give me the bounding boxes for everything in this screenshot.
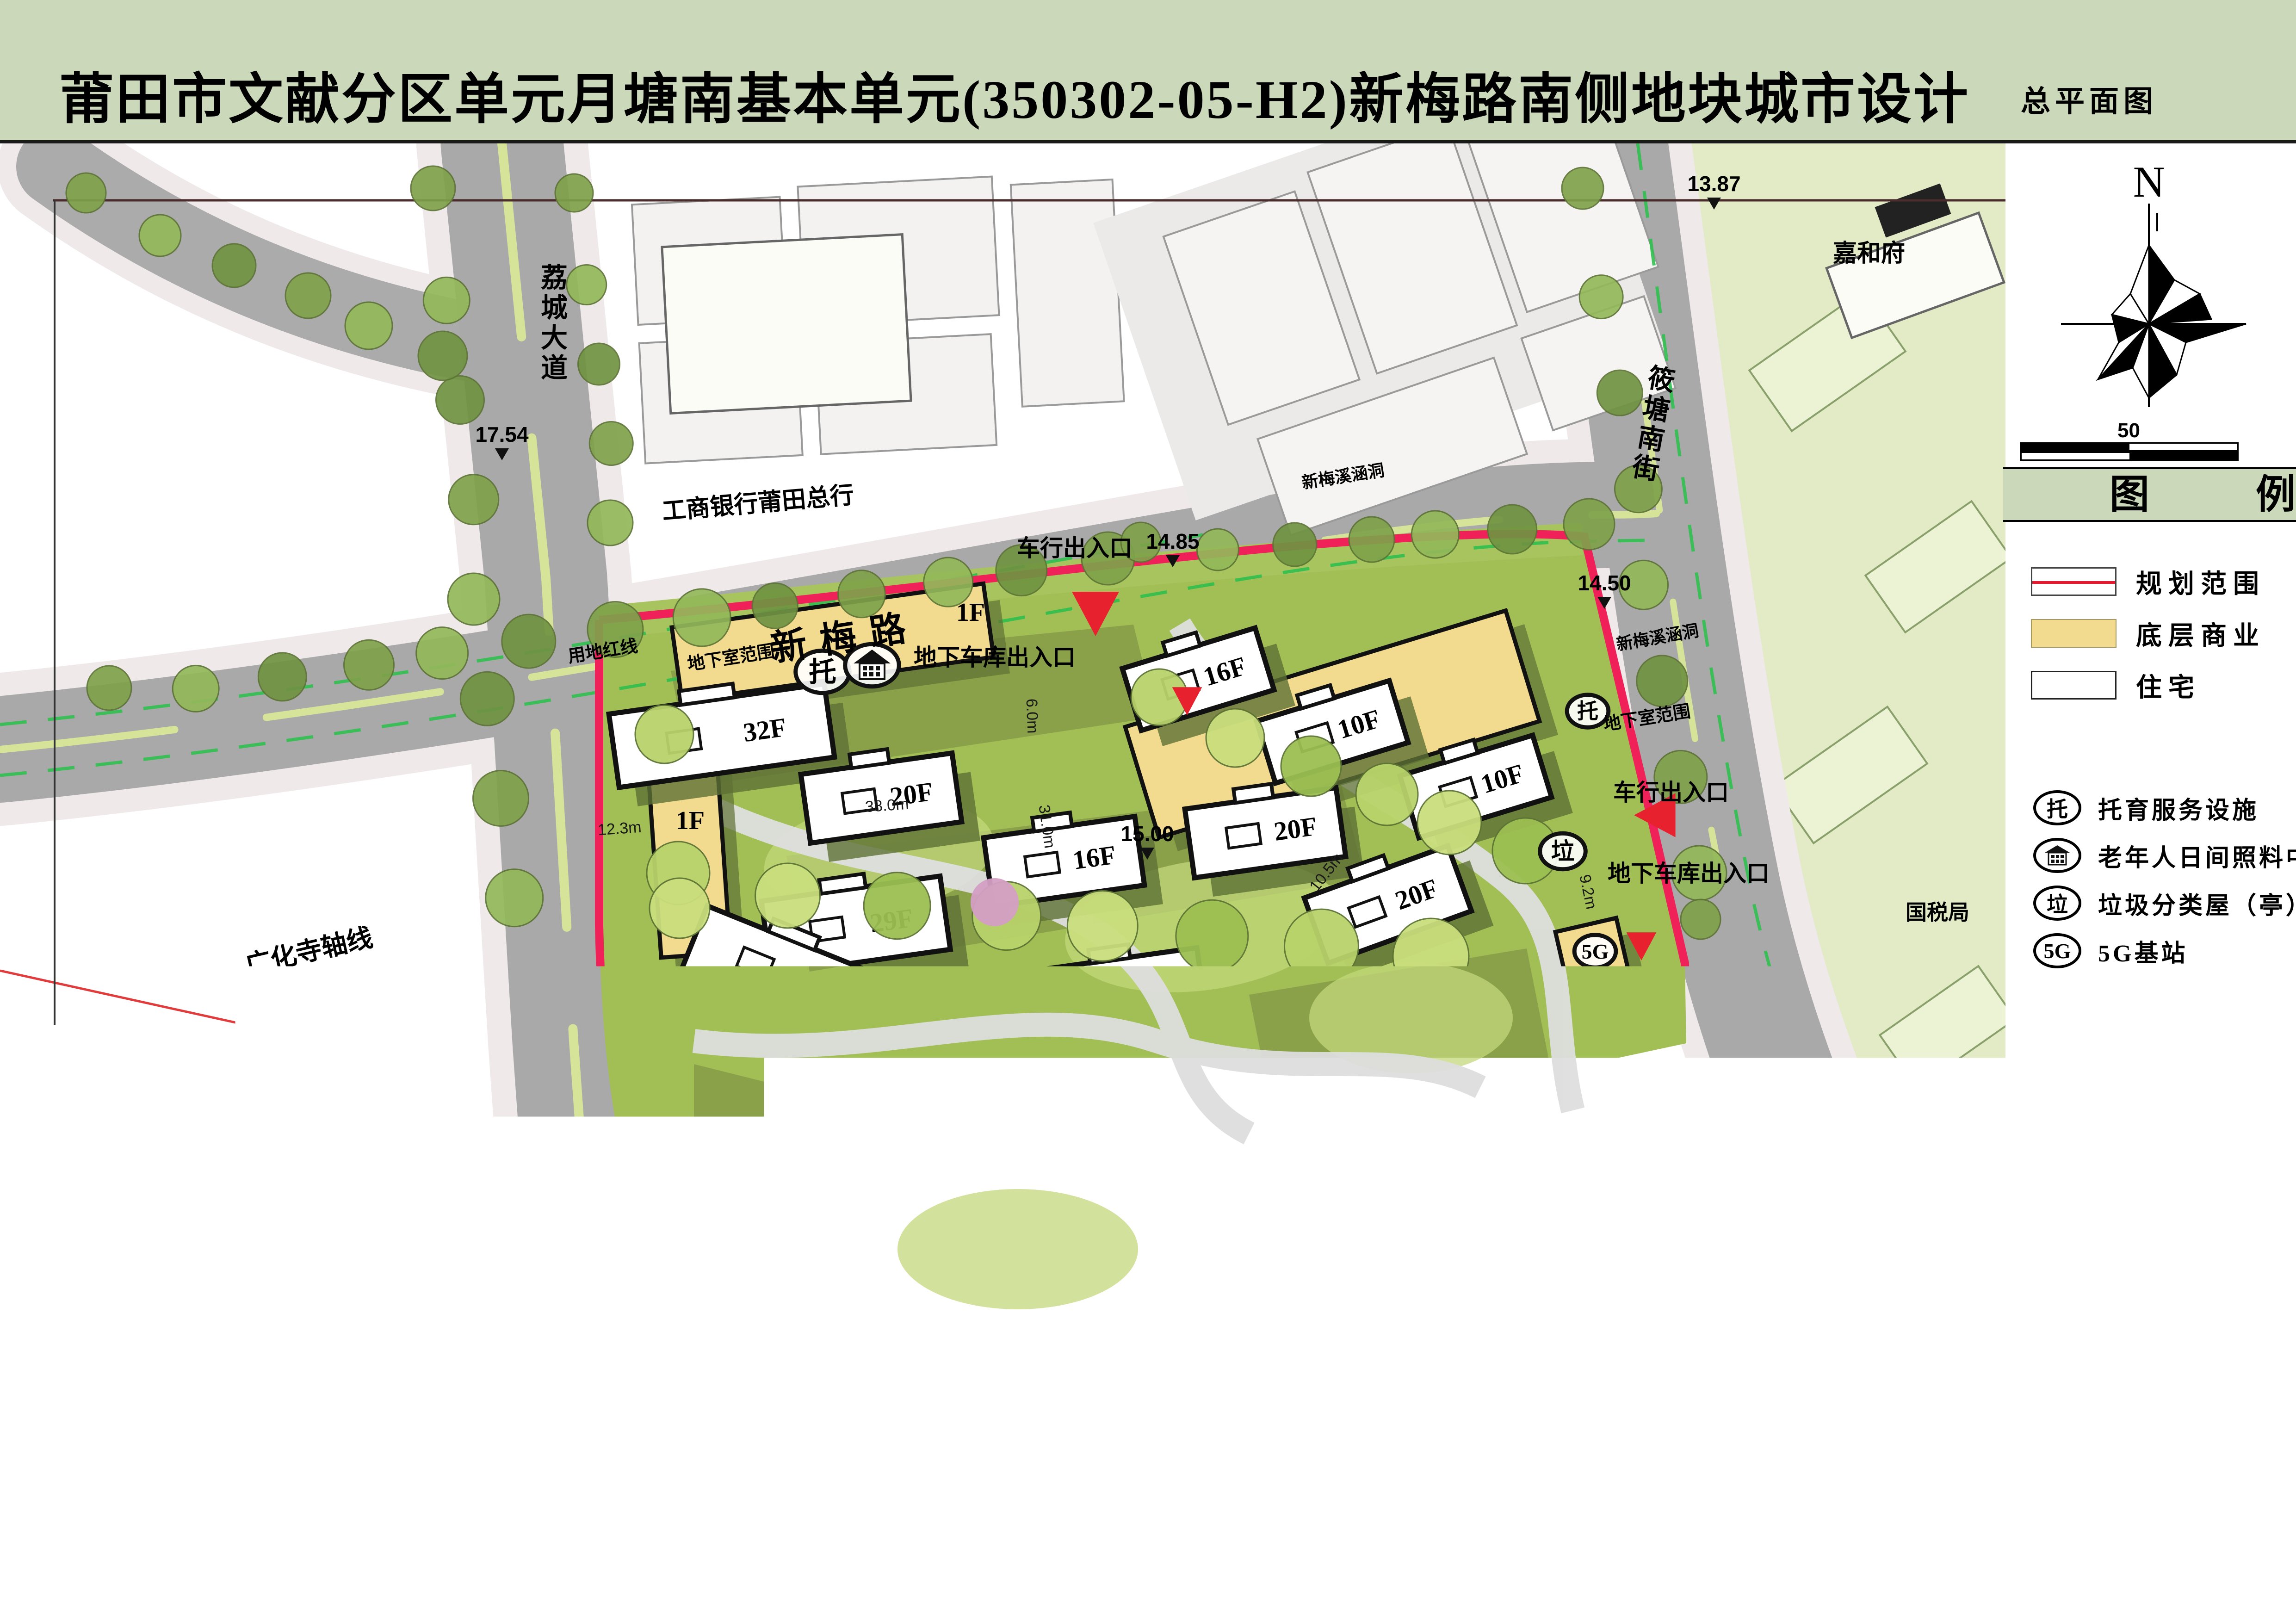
residential-swatch-icon	[2031, 671, 2117, 700]
master-plan-sheet: { "header": { "title": "莆田市文献分区单元月塘南基本单元…	[0, 0, 2296, 1623]
map-label: 3F	[1203, 1308, 1230, 1334]
5G-circle-icon: 5G	[1574, 935, 1616, 967]
svg-text:垃: 垃	[1551, 839, 1575, 865]
svg-text:5G: 5G	[1582, 940, 1609, 963]
entrance-annotation: 地下车库出入口	[828, 1270, 990, 1296]
entrance-annotation: 车行出入口	[1017, 535, 1133, 561]
svg-text:13.87: 13.87	[1687, 172, 1740, 196]
sheet-name-label: 总平面图	[2021, 78, 2158, 120]
dimension-label: 6.0m	[1023, 698, 1042, 734]
dimension-label: 46.0m	[943, 1214, 988, 1235]
legend-item-commercial: 底层商业	[2031, 617, 2265, 650]
scale-bar-row-2	[2020, 452, 2239, 461]
legend-symbol-daycare: 老年人日间照料中心	[2033, 834, 2296, 877]
垃-circle-icon: 垃	[1540, 833, 1586, 869]
map-label: 国税局	[1906, 901, 1969, 924]
托-circle-icon: 托	[1567, 695, 1609, 727]
dimension-label: 38.0m	[865, 795, 910, 816]
floor-label: 32F	[1131, 973, 1178, 1009]
flowering-tree	[1429, 1114, 1477, 1162]
svg-text:托: 托	[1577, 700, 1598, 723]
scale-tick-50: 50	[2117, 419, 2140, 442]
entrance-annotation: 地下车库出入口	[914, 644, 1076, 670]
daycare-house-icon	[2033, 838, 2081, 873]
page-title: 莆田市文献分区单元月塘南基本单元(350302-05-H2)新梅路南侧地块城市设…	[59, 55, 1970, 134]
section-band	[717, 1603, 1573, 1616]
map-label: 荔城大道	[541, 263, 568, 383]
flowering-tree	[1225, 1022, 1273, 1070]
floor-label: 32F	[741, 712, 788, 748]
map-label: 2F	[1256, 1180, 1283, 1206]
floor-label: 2F	[1604, 995, 1633, 1024]
map-label: 商业	[1085, 1299, 1135, 1326]
legend-symbol-childcare: 托 托育服务设施	[2033, 787, 2259, 829]
legend-item-residential: 住宅	[2031, 669, 2201, 701]
boundary-swatch-icon	[2031, 567, 2117, 596]
entrance-annotation: 地下车库出入口	[1608, 861, 1770, 886]
la-circle-icon: 垃	[2033, 886, 2081, 921]
map-label: 1F	[1310, 1244, 1337, 1270]
site-plan-map: 1F1F1F2F 32F20F16F16F10F10F29F20F20F32F2…	[0, 143, 2005, 1623]
legend-symbol-waste: 垃 垃圾分类屋（亭）	[2033, 882, 2296, 924]
company-title-block: 中述设计集团有限公司	[2003, 1546, 2296, 1605]
floor-label: 16F	[1071, 840, 1118, 875]
commercial-swatch-icon	[2031, 619, 2117, 648]
dimension-label: 6.0m	[1655, 1007, 1691, 1027]
tuo-circle-icon: 托	[2033, 790, 2081, 825]
map-label: 31F	[924, 1546, 954, 1567]
svg-text:17.00: 17.00	[591, 1268, 644, 1292]
svg-text:14.85: 14.85	[1146, 529, 1199, 553]
floor-label: 20F	[1272, 811, 1319, 847]
svg-text:14.50: 14.50	[1578, 571, 1631, 595]
svg-text:15.00: 15.00	[1120, 822, 1174, 846]
map-label: 嘉和府	[1833, 240, 1905, 267]
svg-text:17.54: 17.54	[475, 422, 529, 446]
5g-circle-icon: 5G	[2033, 933, 2081, 968]
legend-item-boundary: 规划范围	[2031, 565, 2265, 598]
map-label: 揽月豪庭	[935, 1505, 1031, 1532]
title-bar: 莆田市文献分区单元月塘南基本单元(350302-05-H2)新梅路南侧地块城市设…	[0, 0, 2296, 143]
floor-label: 1F	[676, 806, 705, 835]
svg-text:14.27: 14.27	[1931, 1277, 1984, 1301]
map-label: 鑫源大厦	[1622, 1134, 1711, 1158]
entrance-annotation: 地下车库出入口	[1349, 1313, 1511, 1338]
context-building	[662, 235, 911, 414]
map-label: 32F	[1153, 1469, 1182, 1490]
north-label: N	[2133, 157, 2165, 206]
floor-label: 16F	[1502, 1052, 1549, 1087]
north-compass-icon: N	[2033, 157, 2265, 416]
legend-title: 图例	[2003, 467, 2296, 522]
entrance-annotation: 商业出入口	[1114, 1428, 1229, 1454]
dimension-label: 12.3m	[597, 818, 642, 839]
map-label: 嘉禾花园	[1667, 1361, 1764, 1388]
sidebar: N 50 0 100M 图例 规划范围 底层商业	[2005, 143, 2296, 1623]
map-label: 2F	[1311, 1336, 1337, 1362]
entrance-annotation: 车行出入口	[1613, 780, 1729, 805]
entrance-annotation: 消防应急出入口	[1461, 1280, 1622, 1306]
flowering-tree	[762, 1133, 811, 1181]
legend-symbol-5g: 5G 5G基站	[2033, 929, 2188, 972]
flowering-tree	[971, 878, 1019, 926]
scale-bar-row-1	[2020, 442, 2239, 452]
map-label: 商业	[1108, 1135, 1157, 1163]
